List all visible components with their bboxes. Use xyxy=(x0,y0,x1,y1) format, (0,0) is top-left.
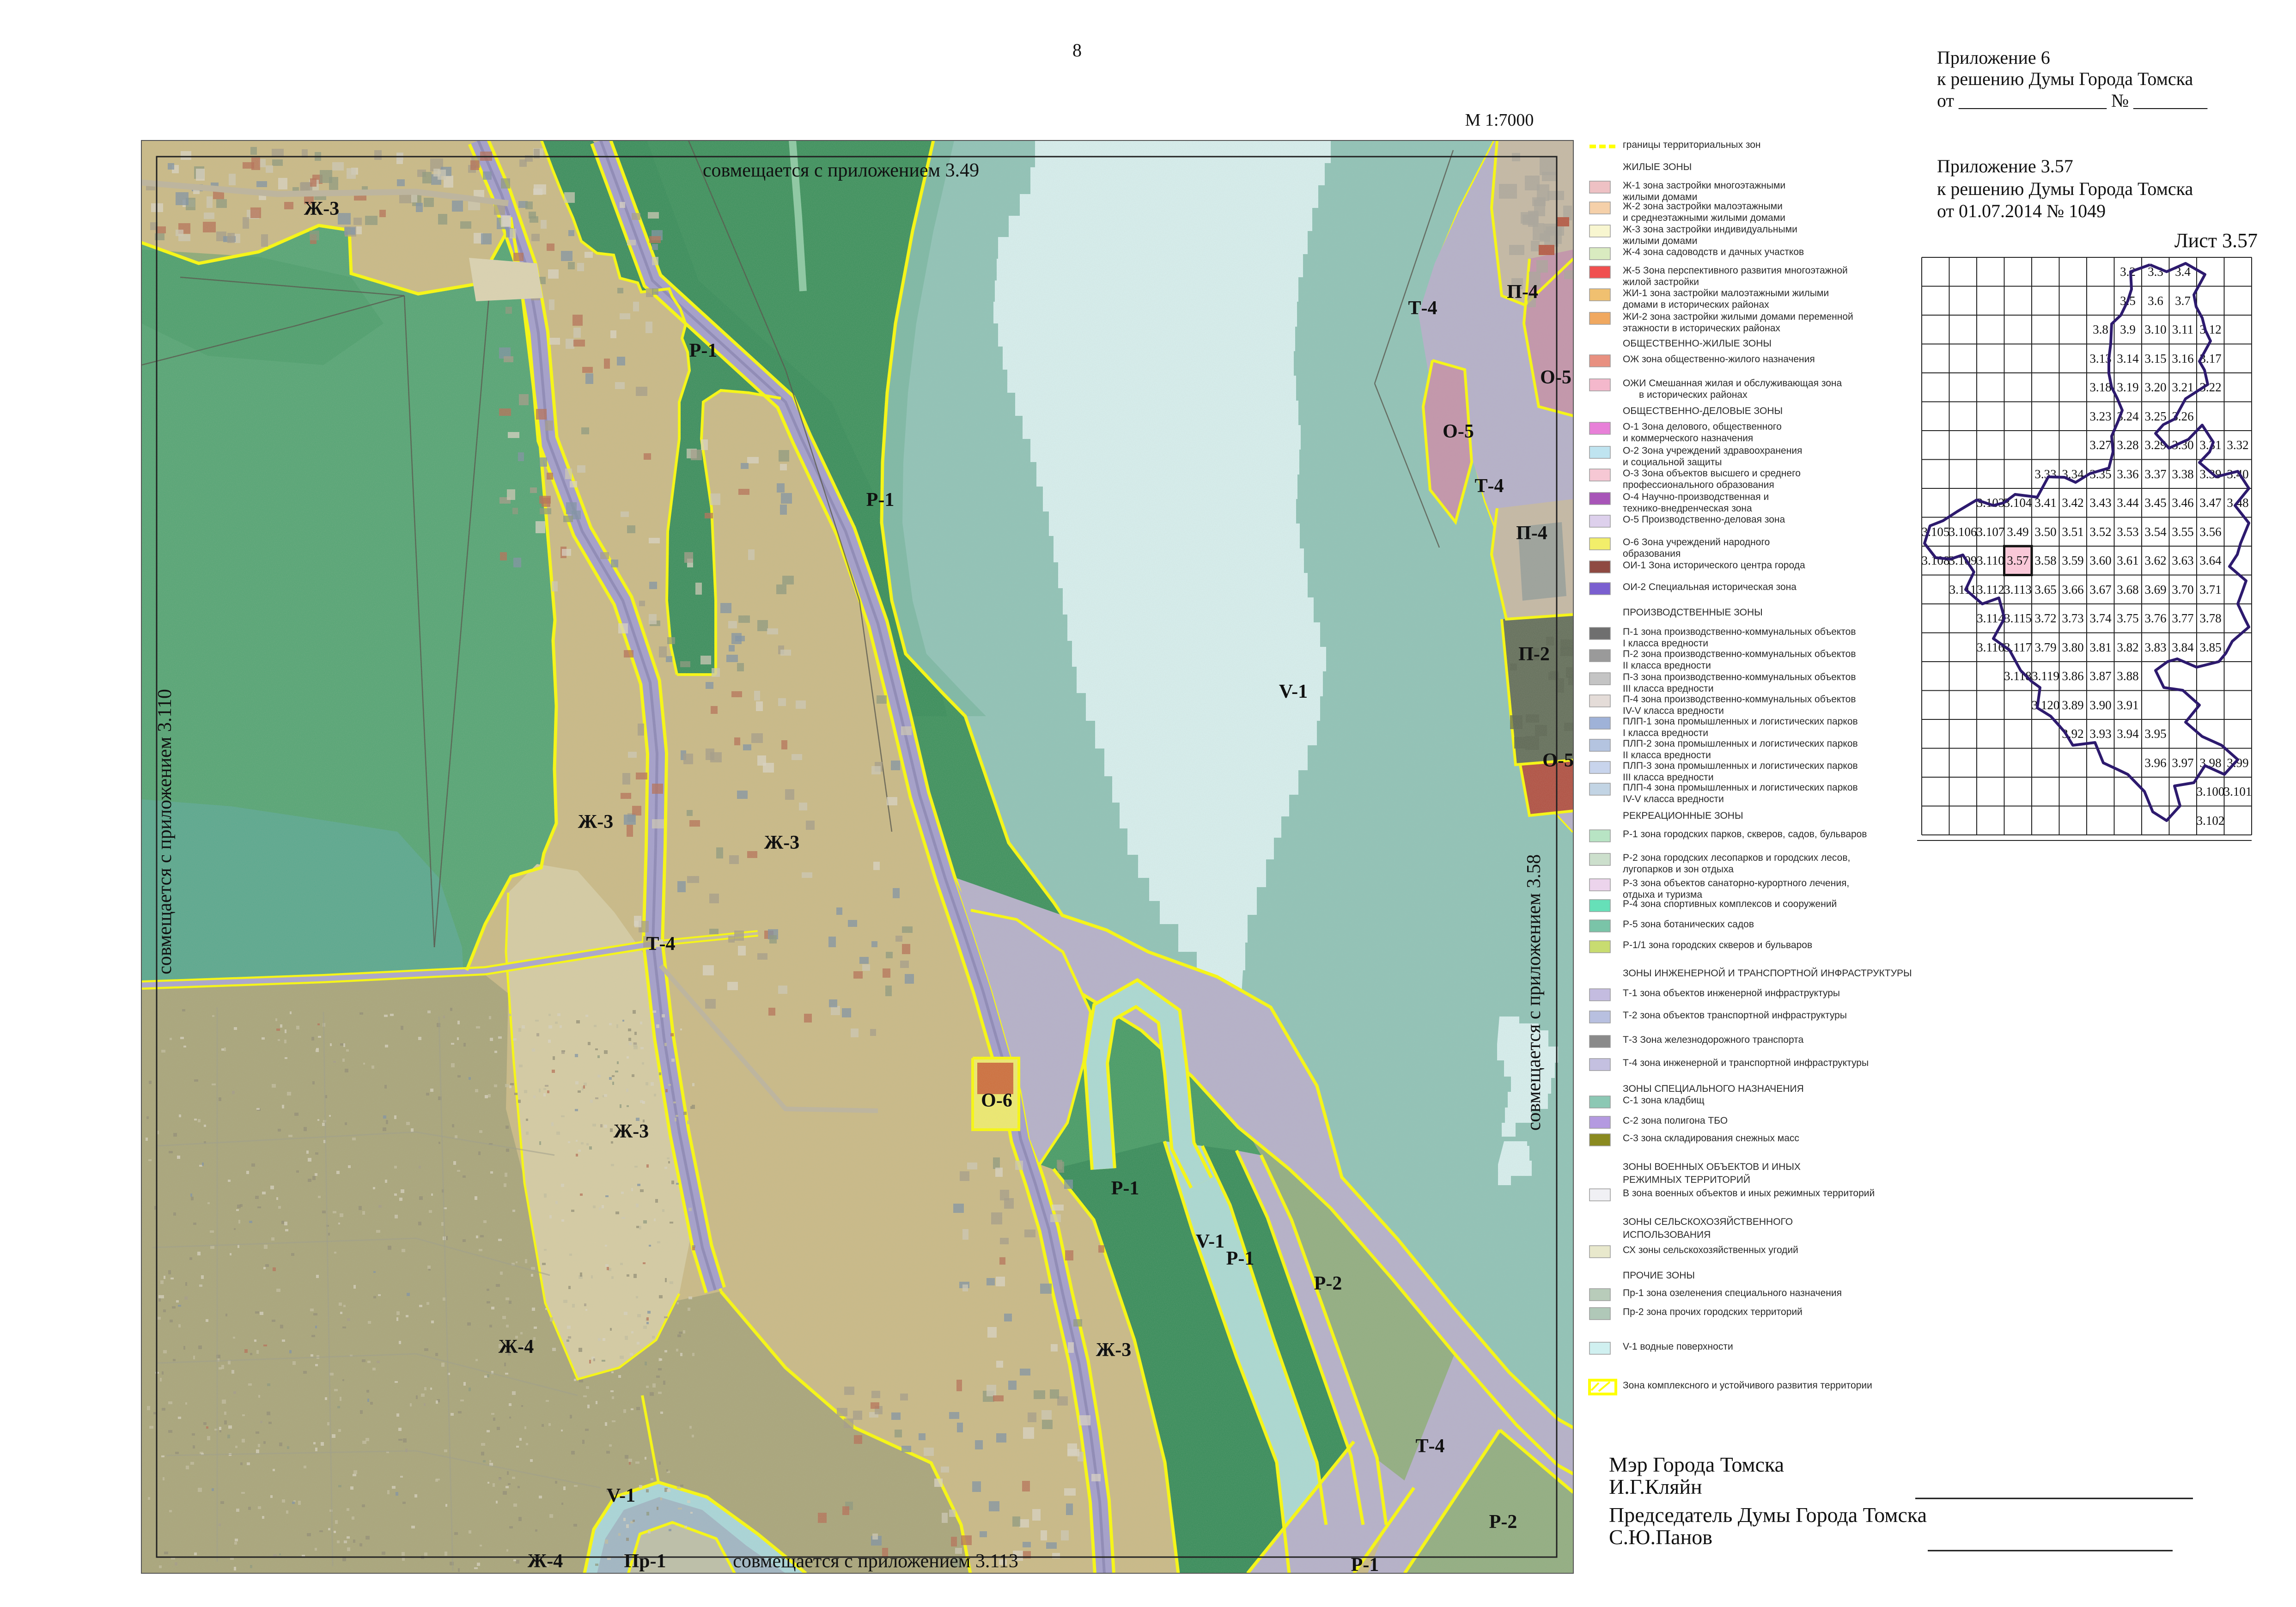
svg-text:3.78: 3.78 xyxy=(2199,611,2221,625)
svg-text:IV-V класса вредности: IV-V класса вредности xyxy=(1623,794,1724,804)
svg-text:О-6: О-6 xyxy=(981,1090,1012,1111)
svg-text:и среднеэтажными жилыми домами: и среднеэтажными жилыми домами xyxy=(1623,213,1785,223)
svg-text:Р-5 зона ботанических садов: Р-5 зона ботанических садов xyxy=(1623,919,1754,930)
svg-text:Приложение 3.57: Приложение 3.57 xyxy=(1937,156,2073,177)
svg-text:3.58: 3.58 xyxy=(2034,554,2056,567)
svg-text:ИСПОЛЬЗОВАНИЯ: ИСПОЛЬЗОВАНИЯ xyxy=(1623,1230,1711,1240)
svg-text:Т-1 зона объектов инженерной и: Т-1 зона объектов инженерной инфраструкт… xyxy=(1623,988,1840,998)
svg-text:Р-1/1 зона городских скверов и: Р-1/1 зона городских скверов и бульваров xyxy=(1623,940,1812,950)
svg-text:П-3 зона производственно-комму: П-3 зона производственно-коммунальных об… xyxy=(1623,672,1856,682)
svg-text:3.87: 3.87 xyxy=(2089,669,2111,683)
svg-text:3.28: 3.28 xyxy=(2117,438,2138,452)
svg-text:Р-2: Р-2 xyxy=(1489,1511,1517,1533)
svg-text:ПРОЧИЕ ЗОНЫ: ПРОЧИЕ ЗОНЫ xyxy=(1623,1270,1695,1281)
svg-text:О-2 Зона учреждений здравоохра: О-2 Зона учреждений здравоохранения xyxy=(1623,445,1802,456)
svg-text:Т-4 зона инженерной и транспор: Т-4 зона инженерной и транспортной инфра… xyxy=(1623,1058,1869,1068)
svg-text:П-1 зона производственно-комму: П-1 зона производственно-коммунальных об… xyxy=(1623,627,1856,637)
svg-text:3.95: 3.95 xyxy=(2144,727,2166,741)
svg-text:ПЛП-4 зона промышленных и логи: ПЛП-4 зона промышленных и логистических … xyxy=(1623,782,1858,793)
svg-text:от ________________ № _______: от ________________ № ________ xyxy=(1937,90,2208,111)
svg-text:3.69: 3.69 xyxy=(2144,583,2166,597)
svg-text:3.25: 3.25 xyxy=(2144,409,2166,423)
svg-text:3.67: 3.67 xyxy=(2089,583,2111,597)
svg-text:Пр-2 зона прочих городских тер: Пр-2 зона прочих городских территорий xyxy=(1623,1307,1803,1317)
svg-text:III класса вредности: III класса вредности xyxy=(1623,772,1714,783)
svg-text:3.11: 3.11 xyxy=(2172,323,2193,336)
svg-text:V-1 водные поверхности: V-1 водные поверхности xyxy=(1623,1341,1733,1352)
svg-text:3.96: 3.96 xyxy=(2144,756,2166,770)
svg-text:С.Ю.Панов: С.Ю.Панов xyxy=(1609,1525,1712,1549)
svg-text:3.19: 3.19 xyxy=(2117,380,2138,394)
svg-text:3.119: 3.119 xyxy=(2032,669,2059,683)
svg-text:Ж-2 зона застройки малоэтажным: Ж-2 зона застройки малоэтажными xyxy=(1623,201,1783,212)
svg-text:Ж-4: Ж-4 xyxy=(528,1551,563,1572)
svg-text:3.75: 3.75 xyxy=(2117,611,2138,625)
svg-text:3.56: 3.56 xyxy=(2199,525,2221,539)
svg-text:3.46: 3.46 xyxy=(2172,496,2193,510)
svg-text:Р-1: Р-1 xyxy=(1226,1248,1255,1269)
svg-text:О-5: О-5 xyxy=(1540,367,1571,388)
svg-text:Р-3 зона объектов санаторно-ку: Р-3 зона объектов санаторно-курортного л… xyxy=(1623,878,1849,889)
svg-text:3.39: 3.39 xyxy=(2199,467,2221,481)
svg-text:Ж-3: Ж-3 xyxy=(304,198,340,219)
svg-text:3.47: 3.47 xyxy=(2199,496,2221,510)
svg-text:жилыми домами: жилыми домами xyxy=(1623,236,1697,246)
svg-text:ПЛП-1 зона промышленных и логи: ПЛП-1 зона промышленных и логистических … xyxy=(1623,716,1858,727)
svg-text:Ж-4: Ж-4 xyxy=(499,1336,534,1357)
svg-text:О-5: О-5 xyxy=(1542,750,1574,771)
svg-text:Р-4 зона спортивных комплексов: Р-4 зона спортивных комплексов и сооруже… xyxy=(1623,899,1837,909)
svg-text:ОЖ зона общественно-жилого наз: ОЖ зона общественно-жилого назначения xyxy=(1623,354,1815,365)
svg-text:ЖИ-2 зона застройки жилыми дом: ЖИ-2 зона застройки жилыми домами переме… xyxy=(1623,311,1853,322)
svg-text:3.72: 3.72 xyxy=(2034,611,2056,625)
svg-text:3.76: 3.76 xyxy=(2144,611,2166,625)
svg-text:Ж-3: Ж-3 xyxy=(764,832,800,853)
svg-text:3.50: 3.50 xyxy=(2034,525,2056,539)
svg-text:ЗОНЫ ИНЖЕНЕРНОЙ И ТРАНСПОРТНОЙ: ЗОНЫ ИНЖЕНЕРНОЙ И ТРАНСПОРТНОЙ ИНФРАСТРУ… xyxy=(1623,968,1912,979)
svg-text:3.61: 3.61 xyxy=(2117,554,2138,567)
svg-text:совмещается с приложением 3.58: совмещается с приложением 3.58 xyxy=(1523,854,1545,1131)
svg-text:И.Г.Кляйн: И.Г.Кляйн xyxy=(1609,1475,1702,1498)
svg-text:ОИ-1 Зона исторического центра: ОИ-1 Зона исторического центра города xyxy=(1623,560,1805,571)
svg-text:СХ зоны сельскохозяйственных у: СХ зоны сельскохозяйственных угодий xyxy=(1623,1245,1798,1255)
svg-text:3.53: 3.53 xyxy=(2117,525,2138,539)
svg-text:3.54: 3.54 xyxy=(2144,525,2167,539)
svg-text:3.112: 3.112 xyxy=(1977,583,2004,597)
svg-text:3.81: 3.81 xyxy=(2089,640,2111,654)
svg-text:3.52: 3.52 xyxy=(2089,525,2111,539)
svg-text:3.42: 3.42 xyxy=(2062,496,2083,510)
svg-text:Р-1 зона городских парков, скв: Р-1 зона городских парков, скверов, садо… xyxy=(1623,829,1867,840)
svg-text:В зона военных объектов и иных: В зона военных объектов и иных режимных … xyxy=(1623,1188,1875,1199)
svg-text:Т-4: Т-4 xyxy=(1416,1436,1445,1457)
svg-text:3.68: 3.68 xyxy=(2117,583,2138,597)
svg-text:I класса вредности: I класса вредности xyxy=(1623,728,1708,738)
svg-text:Лист 3.57: Лист 3.57 xyxy=(2174,229,2258,252)
svg-text:3.104: 3.104 xyxy=(2004,496,2032,510)
svg-text:3.15: 3.15 xyxy=(2144,352,2166,365)
svg-text:3.85: 3.85 xyxy=(2199,640,2221,654)
svg-text:Пр-1 зона озеленения специальн: Пр-1 зона озеленения специального назнач… xyxy=(1623,1288,1842,1298)
svg-text:3.117: 3.117 xyxy=(2004,640,2032,654)
svg-text:Ж-4 зона садоводств и дачных у: Ж-4 зона садоводств и дачных участков xyxy=(1623,247,1804,257)
svg-text:3.45: 3.45 xyxy=(2144,496,2166,510)
svg-text:границы территориальных зон: границы территориальных зон xyxy=(1623,140,1761,150)
svg-text:Р-1: Р-1 xyxy=(1351,1554,1379,1576)
svg-text:ЖИ-1 зона застройки малоэтажны: ЖИ-1 зона застройки малоэтажными жилыми xyxy=(1623,288,1829,298)
svg-text:М 1:7000: М 1:7000 xyxy=(1465,110,1534,130)
svg-text:к решению Думы Города Томска: к решению Думы Города Томска xyxy=(1937,68,2193,89)
svg-text:к решению Думы Города Томска: к решению Думы Города Томска xyxy=(1937,178,2193,199)
svg-text:3.101: 3.101 xyxy=(2224,785,2252,798)
svg-text:П-4: П-4 xyxy=(1507,281,1538,303)
svg-text:3.60: 3.60 xyxy=(2089,554,2111,567)
svg-text:3.7: 3.7 xyxy=(2175,294,2191,308)
svg-text:технико-внедренческая зона: технико-внедренческая зона xyxy=(1623,503,1752,514)
svg-text:ПЛП-3 зона промышленных и логи: ПЛП-3 зона промышленных и логистических … xyxy=(1623,761,1858,771)
svg-text:3.115: 3.115 xyxy=(2004,611,2032,625)
svg-text:ОЖИ Смешанная жилая и обслужив: ОЖИ Смешанная жилая и обслуживающая зона xyxy=(1623,378,1842,389)
svg-text:V-1: V-1 xyxy=(1196,1231,1224,1252)
svg-text:3.49: 3.49 xyxy=(2007,525,2028,539)
svg-text:3.89: 3.89 xyxy=(2062,698,2083,712)
svg-text:Приложение 6: Приложение 6 xyxy=(1937,47,2050,68)
svg-text:3.79: 3.79 xyxy=(2034,640,2056,654)
svg-text:П-2 зона производственно-комму: П-2 зона производственно-коммунальных об… xyxy=(1623,649,1856,659)
svg-text:3.9: 3.9 xyxy=(2120,323,2136,336)
svg-text:3.65: 3.65 xyxy=(2034,583,2056,597)
svg-text:3.32: 3.32 xyxy=(2227,438,2248,452)
svg-text:О-3 Зона объектов высшего и ср: О-3 Зона объектов высшего и среднего xyxy=(1623,468,1801,479)
svg-text:3.94: 3.94 xyxy=(2117,727,2139,741)
svg-text:3.27: 3.27 xyxy=(2089,438,2111,452)
svg-text:3.100: 3.100 xyxy=(2197,785,2225,798)
svg-text:3.86: 3.86 xyxy=(2062,669,2083,683)
svg-text:3.70: 3.70 xyxy=(2172,583,2193,597)
svg-text:Т-4: Т-4 xyxy=(1475,475,1504,497)
svg-text:и социальной защиты: и социальной защиты xyxy=(1623,457,1722,468)
svg-text:3.21: 3.21 xyxy=(2172,380,2193,394)
svg-text:3.36: 3.36 xyxy=(2117,467,2138,481)
svg-text:П-2: П-2 xyxy=(1518,644,1550,665)
svg-text:3.20: 3.20 xyxy=(2144,380,2166,394)
svg-text:Ж-3 зона застройки индивидуаль: Ж-3 зона застройки индивидуальными xyxy=(1623,224,1797,235)
svg-text:II класса вредности: II класса вредности xyxy=(1623,750,1711,761)
svg-text:Р-2: Р-2 xyxy=(1314,1273,1342,1294)
svg-text:3.43: 3.43 xyxy=(2089,496,2111,510)
svg-text:С-3 зона складирования снежных: С-3 зона складирования снежных масс xyxy=(1623,1133,1799,1144)
svg-text:8: 8 xyxy=(1072,40,1082,61)
svg-text:РЕКРЕАЦИОННЫЕ ЗОНЫ: РЕКРЕАЦИОННЫЕ ЗОНЫ xyxy=(1623,810,1743,821)
svg-text:этажности в исторических район: этажности в исторических районах xyxy=(1623,323,1780,334)
svg-text:ОБЩЕСТВЕННО-ЖИЛЫЕ ЗОНЫ: ОБЩЕСТВЕННО-ЖИЛЫЕ ЗОНЫ xyxy=(1623,338,1772,349)
svg-text:3.71: 3.71 xyxy=(2199,583,2221,597)
svg-text:3.38: 3.38 xyxy=(2172,467,2193,481)
svg-text:ЗОНЫ СПЕЦИАЛЬНОГО НАЗНАЧЕНИЯ: ЗОНЫ СПЕЦИАЛЬНОГО НАЗНАЧЕНИЯ xyxy=(1623,1084,1804,1094)
svg-text:О-4 Научно-производственная и: О-4 Научно-производственная и xyxy=(1623,492,1769,502)
svg-text:ЗОНЫ СЕЛЬСКОХОЗЯЙСТВЕННОГО: ЗОНЫ СЕЛЬСКОХОЗЯЙСТВЕННОГО xyxy=(1623,1216,1793,1227)
svg-text:профессионального образования: профессионального образования xyxy=(1623,480,1774,490)
svg-text:3.107: 3.107 xyxy=(1977,525,2005,539)
svg-text:3.110: 3.110 xyxy=(1977,554,2004,567)
svg-text:образования: образования xyxy=(1623,548,1681,559)
svg-text:V-1: V-1 xyxy=(1279,681,1308,702)
svg-text:Ж-3: Ж-3 xyxy=(578,811,614,833)
svg-text:3.10: 3.10 xyxy=(2144,323,2166,336)
svg-text:и коммерческого назначения: и коммерческого назначения xyxy=(1623,433,1753,444)
svg-text:Т-4: Т-4 xyxy=(646,933,676,955)
svg-text:лугопарков и зон отдыха: лугопарков и зон отдыха xyxy=(1623,864,1734,875)
svg-text:совмещается с приложением 3.49: совмещается с приложением 3.49 xyxy=(703,160,979,181)
svg-text:Зона комплексного и устойчивог: Зона комплексного и устойчивого развития… xyxy=(1623,1380,1872,1391)
svg-text:3.64: 3.64 xyxy=(2199,554,2222,567)
svg-text:V-1: V-1 xyxy=(607,1485,635,1506)
svg-text:3.80: 3.80 xyxy=(2062,640,2083,654)
svg-text:3.51: 3.51 xyxy=(2062,525,2083,539)
svg-text:совмещается с приложением 3.11: совмещается с приложением 3.113 xyxy=(733,1551,1018,1572)
svg-text:Ж-3: Ж-3 xyxy=(1096,1339,1132,1361)
svg-text:жилой застройки: жилой застройки xyxy=(1623,277,1699,287)
svg-text:совмещается с приложением 3.11: совмещается с приложением 3.110 xyxy=(154,689,176,974)
svg-text:от 01.07.2014 № 1049: от 01.07.2014 № 1049 xyxy=(1937,201,2106,221)
svg-text:ОИ-2 Специальная историческая: ОИ-2 Специальная историческая зона xyxy=(1623,582,1797,592)
svg-text:3.93: 3.93 xyxy=(2089,727,2111,741)
svg-text:3.44: 3.44 xyxy=(2117,496,2139,510)
svg-text:Председатель Думы Города Томск: Председатель Думы Города Томска xyxy=(1609,1503,1927,1527)
svg-text:С-2 зона полигона ТБО: С-2 зона полигона ТБО xyxy=(1623,1115,1728,1126)
svg-text:3.90: 3.90 xyxy=(2089,698,2111,712)
svg-text:домами в исторических районах: домами в исторических районах xyxy=(1623,299,1769,310)
svg-text:Ж-3: Ж-3 xyxy=(614,1121,649,1142)
svg-text:О-5 Производственно-деловая зо: О-5 Производственно-деловая зона xyxy=(1623,514,1785,525)
svg-text:Ж-1 зона застройки многоэтажны: Ж-1 зона застройки многоэтажными xyxy=(1623,180,1785,191)
svg-text:3.55: 3.55 xyxy=(2172,525,2193,539)
svg-text:Р-1: Р-1 xyxy=(689,340,718,361)
svg-text:Пр-1: Пр-1 xyxy=(624,1551,666,1572)
svg-text:3.8: 3.8 xyxy=(2093,323,2108,336)
svg-text:3.113: 3.113 xyxy=(2004,583,2032,597)
svg-text:3.82: 3.82 xyxy=(2117,640,2138,654)
svg-text:IV-V класса вредности: IV-V класса вредности xyxy=(1623,706,1724,716)
svg-text:3.84: 3.84 xyxy=(2172,640,2194,654)
svg-text:П-4 зона производственно-комму: П-4 зона производственно-коммунальных об… xyxy=(1623,694,1856,705)
svg-text:3.16: 3.16 xyxy=(2172,352,2193,365)
svg-text:Р-1: Р-1 xyxy=(1111,1178,1139,1199)
svg-text:Мэр Города Томска: Мэр Города Томска xyxy=(1609,1453,1784,1476)
svg-text:3.97: 3.97 xyxy=(2172,756,2193,770)
svg-text:3.14: 3.14 xyxy=(2117,352,2139,365)
svg-text:О-6 Зона учреждений народного: О-6 Зона учреждений народного xyxy=(1623,537,1770,548)
svg-text:РЕЖИМНЫХ ТЕРРИТОРИЙ: РЕЖИМНЫХ ТЕРРИТОРИЙ xyxy=(1623,1174,1750,1185)
svg-text:3.37: 3.37 xyxy=(2144,467,2166,481)
svg-text:3.106: 3.106 xyxy=(1949,525,1977,539)
svg-text:3.23: 3.23 xyxy=(2089,409,2111,423)
svg-text:3.91: 3.91 xyxy=(2117,698,2138,712)
svg-text:Р-2 зона городских лесопарков: Р-2 зона городских лесопарков и городски… xyxy=(1623,852,1850,863)
svg-text:Т-2 зона объектов транспортной: Т-2 зона объектов транспортной инфрастру… xyxy=(1623,1010,1847,1021)
svg-text:Р-1: Р-1 xyxy=(866,489,895,511)
svg-text:О-1 Зона делового, общественно: О-1 Зона делового, общественного xyxy=(1623,421,1782,432)
svg-text:3.83: 3.83 xyxy=(2144,640,2166,654)
svg-text:3.33: 3.33 xyxy=(2034,467,2056,481)
svg-text:П-4: П-4 xyxy=(1516,523,1547,544)
svg-text:3.62: 3.62 xyxy=(2144,554,2166,567)
svg-text:3.18: 3.18 xyxy=(2089,380,2111,394)
svg-text:ЗОНЫ ВОЕННЫХ ОБЪЕКТОВ И ИНЫХ: ЗОНЫ ВОЕННЫХ ОБЪЕКТОВ И ИНЫХ xyxy=(1623,1162,1801,1172)
svg-text:ПЛП-2 зона промышленных и логи: ПЛП-2 зона промышленных и логистических … xyxy=(1623,738,1858,749)
svg-text:ПРОИЗВОДСТВЕННЫЕ ЗОНЫ: ПРОИЗВОДСТВЕННЫЕ ЗОНЫ xyxy=(1623,607,1763,618)
svg-text:О-5: О-5 xyxy=(1443,421,1474,442)
svg-text:в исторических районах: в исторических районах xyxy=(1623,390,1748,400)
svg-text:3.73: 3.73 xyxy=(2062,611,2083,625)
svg-text:3.74: 3.74 xyxy=(2089,611,2112,625)
svg-text:Т-4: Т-4 xyxy=(1408,298,1437,319)
svg-text:3.102: 3.102 xyxy=(2197,814,2225,828)
svg-text:3.120: 3.120 xyxy=(2032,698,2060,712)
svg-text:3.6: 3.6 xyxy=(2148,294,2163,308)
svg-text:3.66: 3.66 xyxy=(2062,583,2083,597)
svg-text:3.63: 3.63 xyxy=(2172,554,2193,567)
svg-text:С-1 зона кладбищ: С-1 зона кладбищ xyxy=(1623,1095,1705,1106)
svg-text:Ж-5 Зона перспективного развит: Ж-5 Зона перспективного развития многоэт… xyxy=(1623,265,1848,276)
svg-text:II класса вредности: II класса вредности xyxy=(1623,660,1711,671)
svg-text:I класса вредности: I класса вредности xyxy=(1623,638,1708,649)
svg-text:ОБЩЕСТВЕННО-ДЕЛОВЫЕ ЗОНЫ: ОБЩЕСТВЕННО-ДЕЛОВЫЕ ЗОНЫ xyxy=(1623,406,1783,416)
svg-text:Т-3 Зона железнодорожного тран: Т-3 Зона железнодорожного транспорта xyxy=(1623,1035,1804,1045)
svg-text:3.57: 3.57 xyxy=(2007,554,2028,567)
svg-text:ЖИЛЫЕ ЗОНЫ: ЖИЛЫЕ ЗОНЫ xyxy=(1623,162,1692,172)
svg-text:3.59: 3.59 xyxy=(2062,554,2083,567)
svg-text:3.77: 3.77 xyxy=(2172,611,2193,625)
svg-text:III класса вредности: III класса вредности xyxy=(1623,683,1714,694)
svg-text:3.88: 3.88 xyxy=(2117,669,2138,683)
